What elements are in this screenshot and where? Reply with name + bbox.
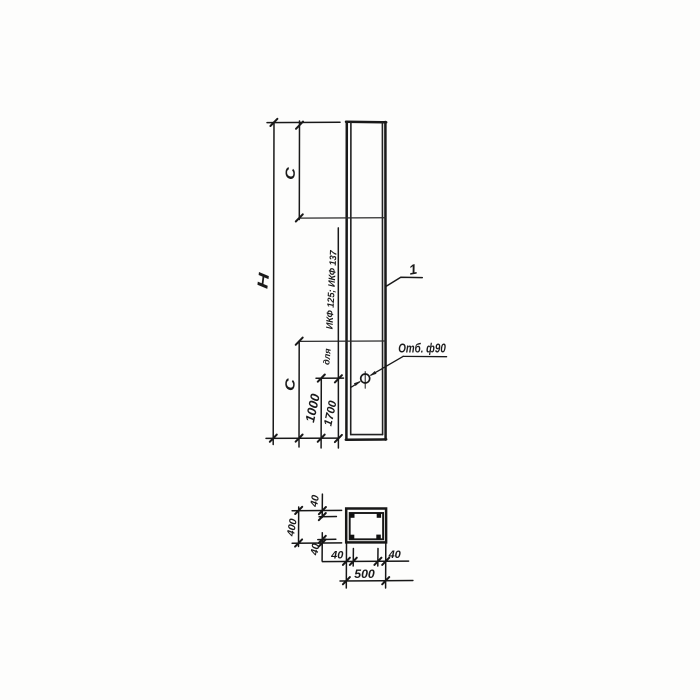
svg-text:1700: 1700 [323,399,340,427]
svg-text:C: C [283,166,300,181]
svg-text:400: 400 [285,518,300,538]
svg-text:40: 40 [308,542,322,557]
svg-text:40: 40 [308,494,322,509]
svg-text:C: C [282,377,299,392]
svg-text:1: 1 [408,261,419,278]
svg-text:40: 40 [388,549,402,561]
svg-text:Отб. ф90: Отб. ф90 [398,341,446,355]
svg-text:40: 40 [330,550,344,562]
svg-text:500: 500 [354,569,375,581]
svg-text:ИКФ 125; ИКФ 137: ИКФ 125; ИКФ 137 [324,249,339,329]
svg-text:H: H [254,271,273,289]
svg-text:для: для [321,347,332,365]
svg-text:1000: 1000 [302,392,323,424]
